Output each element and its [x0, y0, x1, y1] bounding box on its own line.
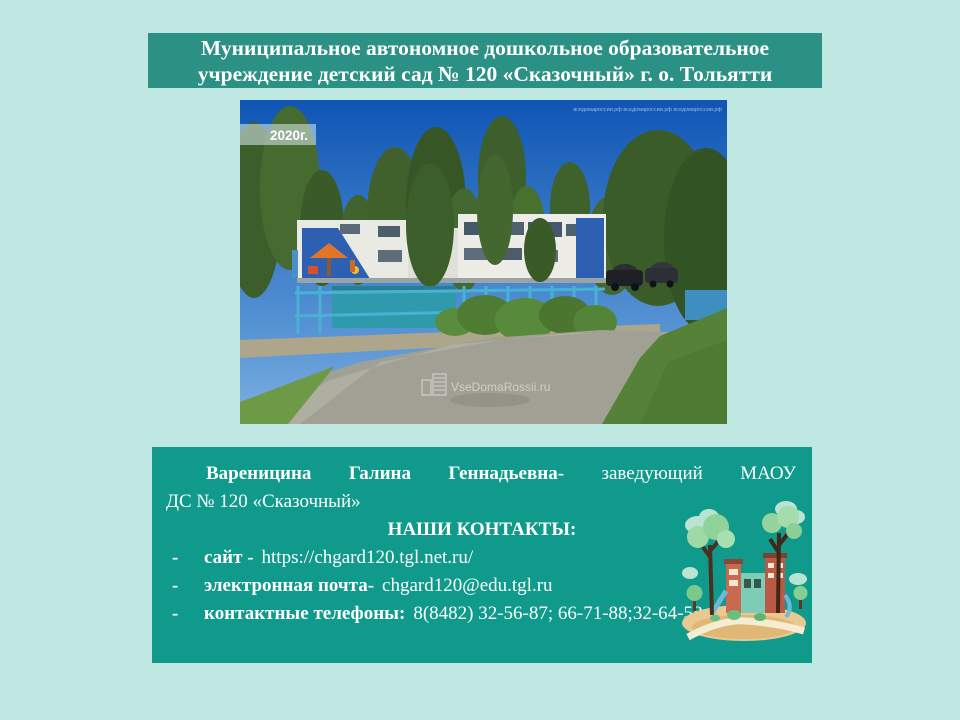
building-photo: VseDomaRossii.ru вседомароссии.рф вседом… — [240, 100, 727, 424]
site-label: сайт - — [204, 544, 254, 572]
head-teacher-name: Вареницина Галина Геннадьевна- — [206, 463, 564, 484]
site-url: https://chgard120.tgl.net.ru/ — [262, 544, 474, 572]
list-dash: - — [166, 544, 204, 572]
photo-watermark-top: вседомароссии.рф вседомароссии.рф вседом… — [573, 107, 722, 113]
phones-label: контактные телефоны: — [204, 600, 405, 628]
slide-title: Муниципальное автономное дошкольное обра… — [165, 35, 805, 87]
presentation-slide: Муниципальное автономное дошкольное обра… — [0, 0, 960, 720]
photo-year-badge: 2020г. — [240, 124, 316, 145]
list-dash: - — [166, 600, 204, 628]
road-patch — [450, 393, 530, 407]
photo-illustration: VseDomaRossii.ru вседомароссии.рф вседом… — [240, 100, 727, 424]
list-dash: - — [166, 572, 204, 600]
head-teacher-role: заведующий МАОУ — [601, 463, 796, 484]
phone-numbers: 8(8482) 32-56-87; 66-71-88;32-64-58 — [413, 600, 702, 628]
playground-clipart — [682, 487, 810, 647]
info-box: Вареницина Галина Геннадьевна- заведующи… — [152, 447, 812, 663]
intro-line-1: Вареницина Галина Геннадьевна- заведующи… — [166, 460, 798, 488]
email-label: электронная почта- — [204, 572, 374, 600]
watermark-center-text: VseDomaRossii.ru — [451, 380, 550, 394]
solid-fence-top — [332, 286, 456, 290]
title-banner: Муниципальное автономное дошкольное обра… — [148, 33, 822, 88]
year-label: 2020г. — [270, 128, 308, 143]
email-address: chgard120@edu.tgl.ru — [382, 572, 553, 600]
clipart-illustration — [682, 487, 810, 647]
